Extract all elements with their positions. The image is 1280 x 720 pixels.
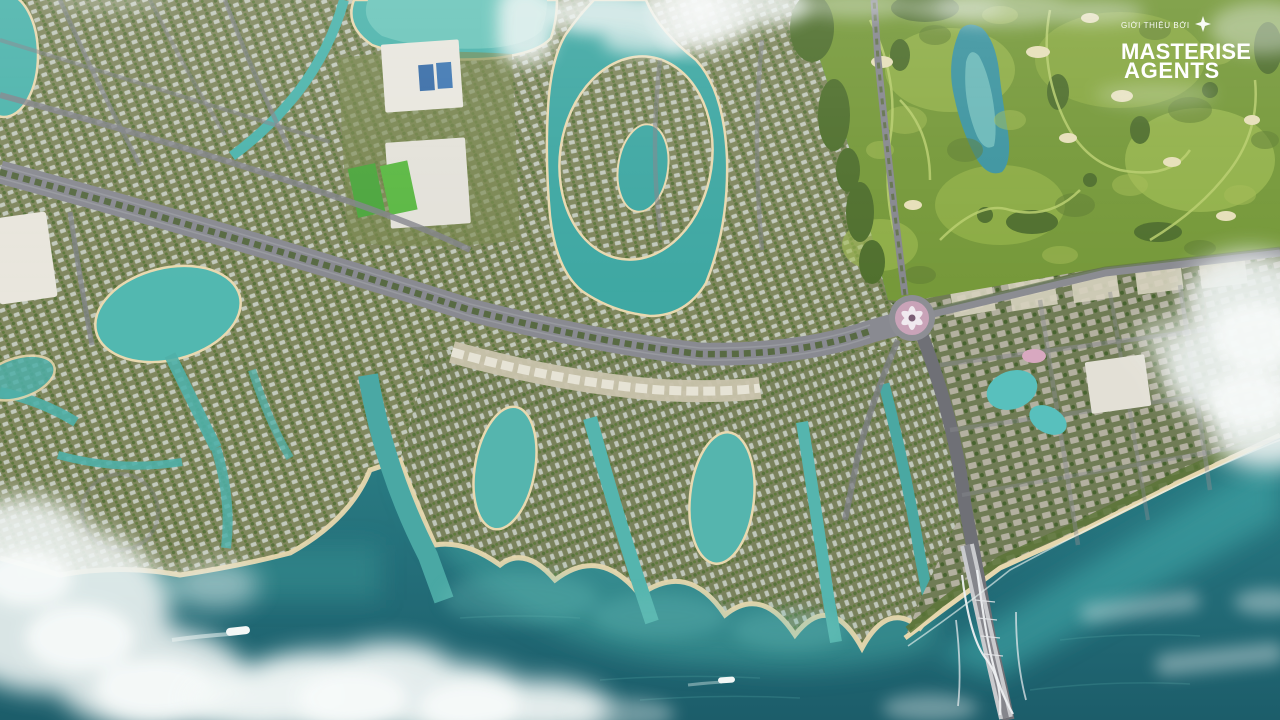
- svg-text:AGENTS: AGENTS: [1124, 58, 1220, 83]
- svg-text:GIỚI THIỆU BỞI: GIỚI THIỆU BỞI: [1121, 21, 1190, 30]
